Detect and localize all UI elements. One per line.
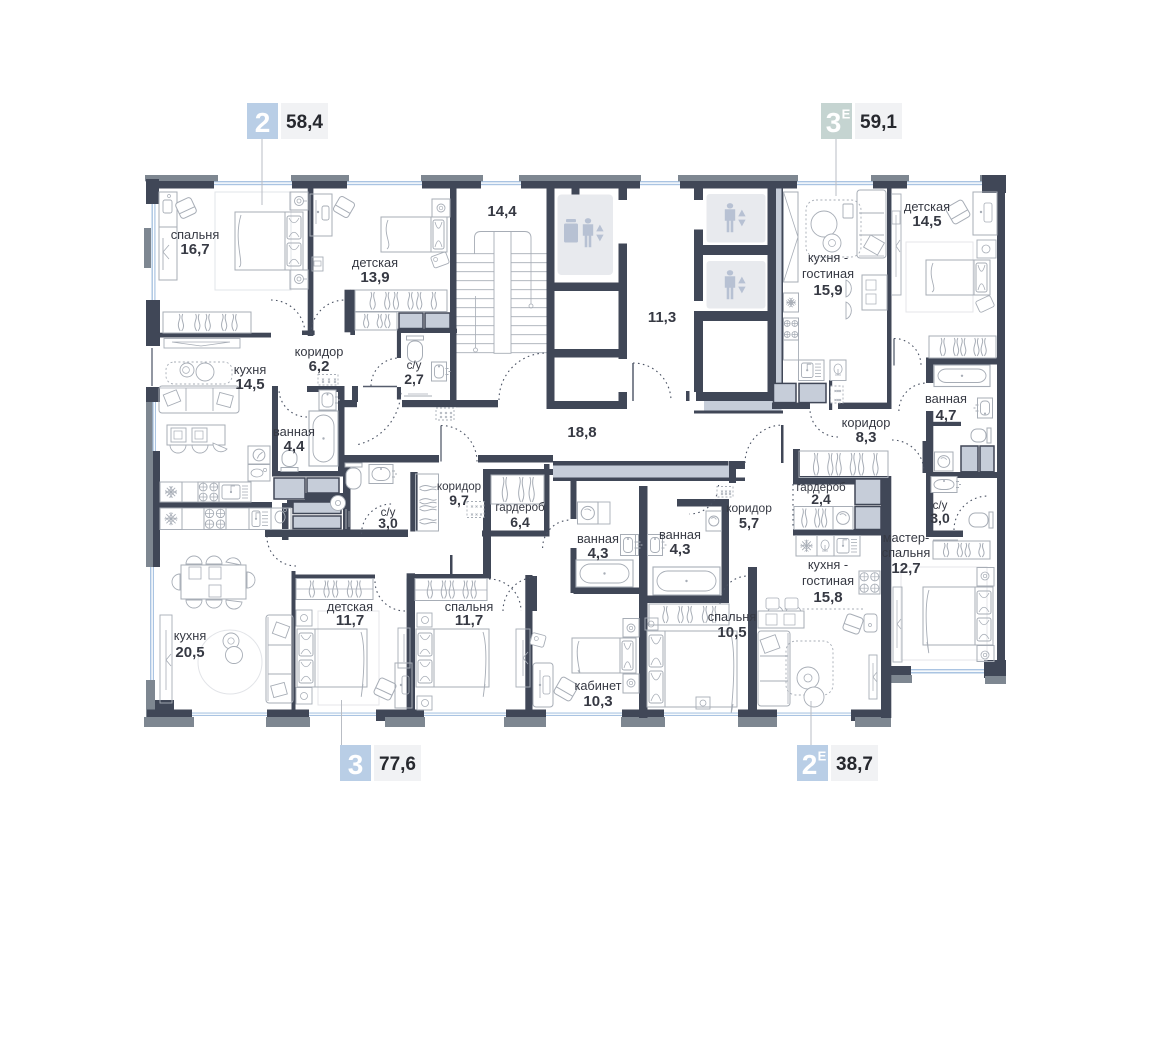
svg-text:детская: детская — [352, 255, 398, 270]
svg-text:ванная: ванная — [659, 527, 701, 542]
svg-text:3: 3 — [826, 107, 842, 138]
svg-text:кабинет: кабинет — [574, 678, 621, 693]
svg-text:ванная: ванная — [577, 531, 619, 546]
svg-text:детская: детская — [904, 199, 950, 214]
svg-text:11,3: 11,3 — [648, 309, 676, 326]
svg-text:38,7: 38,7 — [836, 754, 873, 775]
svg-text:E: E — [842, 107, 851, 122]
svg-text:6,4: 6,4 — [510, 514, 530, 530]
svg-text:3,0: 3,0 — [378, 515, 398, 531]
svg-text:3,0: 3,0 — [930, 510, 950, 526]
svg-text:6,2: 6,2 — [309, 358, 330, 375]
svg-text:4,3: 4,3 — [670, 541, 691, 558]
svg-text:спальня: спальня — [882, 545, 931, 560]
svg-text:2: 2 — [255, 107, 271, 138]
svg-text:4,7: 4,7 — [936, 407, 957, 424]
svg-text:коридор: коридор — [842, 415, 891, 430]
svg-text:16,7: 16,7 — [180, 241, 209, 258]
svg-text:10,5: 10,5 — [717, 624, 746, 641]
svg-text:10,3: 10,3 — [583, 693, 612, 710]
svg-text:9,7: 9,7 — [449, 492, 469, 508]
svg-text:15,8: 15,8 — [813, 589, 842, 606]
svg-text:3: 3 — [348, 749, 364, 780]
svg-text:77,6: 77,6 — [379, 754, 416, 775]
svg-text:2: 2 — [802, 749, 818, 780]
svg-text:2,7: 2,7 — [404, 371, 424, 387]
svg-text:20,5: 20,5 — [175, 644, 204, 661]
svg-text:E: E — [818, 749, 827, 764]
svg-text:14,5: 14,5 — [235, 376, 264, 393]
svg-text:14,5: 14,5 — [912, 213, 941, 230]
svg-text:кухня -: кухня - — [808, 250, 848, 265]
svg-text:коридор: коридор — [726, 501, 772, 515]
svg-text:спальня: спальня — [171, 227, 220, 242]
svg-text:15,9: 15,9 — [813, 282, 842, 299]
svg-text:кухня: кухня — [174, 628, 207, 643]
svg-text:12,7: 12,7 — [891, 560, 920, 577]
svg-text:ванная: ванная — [925, 391, 967, 406]
svg-text:спальня: спальня — [708, 609, 757, 624]
svg-text:13,9: 13,9 — [360, 269, 389, 286]
svg-text:5,7: 5,7 — [739, 516, 759, 532]
svg-text:11,7: 11,7 — [455, 612, 483, 629]
svg-text:гостиная: гостиная — [802, 266, 854, 281]
svg-text:11,7: 11,7 — [336, 612, 364, 629]
svg-text:59,1: 59,1 — [860, 112, 897, 133]
svg-text:гостиная: гостиная — [802, 573, 854, 588]
svg-text:58,4: 58,4 — [286, 112, 323, 133]
svg-text:14,4: 14,4 — [487, 203, 517, 220]
svg-text:кухня: кухня — [234, 362, 267, 377]
svg-text:2,4: 2,4 — [811, 491, 831, 507]
svg-text:кухня -: кухня - — [808, 557, 848, 572]
svg-text:4,3: 4,3 — [588, 545, 609, 562]
svg-text:мастер-: мастер- — [883, 530, 930, 545]
svg-text:18,8: 18,8 — [567, 424, 596, 441]
svg-text:гардероб: гардероб — [495, 501, 545, 514]
svg-text:коридор: коридор — [295, 344, 344, 359]
svg-text:8,3: 8,3 — [856, 429, 877, 446]
svg-text:4,4: 4,4 — [284, 438, 306, 455]
svg-text:ванная: ванная — [273, 424, 315, 439]
